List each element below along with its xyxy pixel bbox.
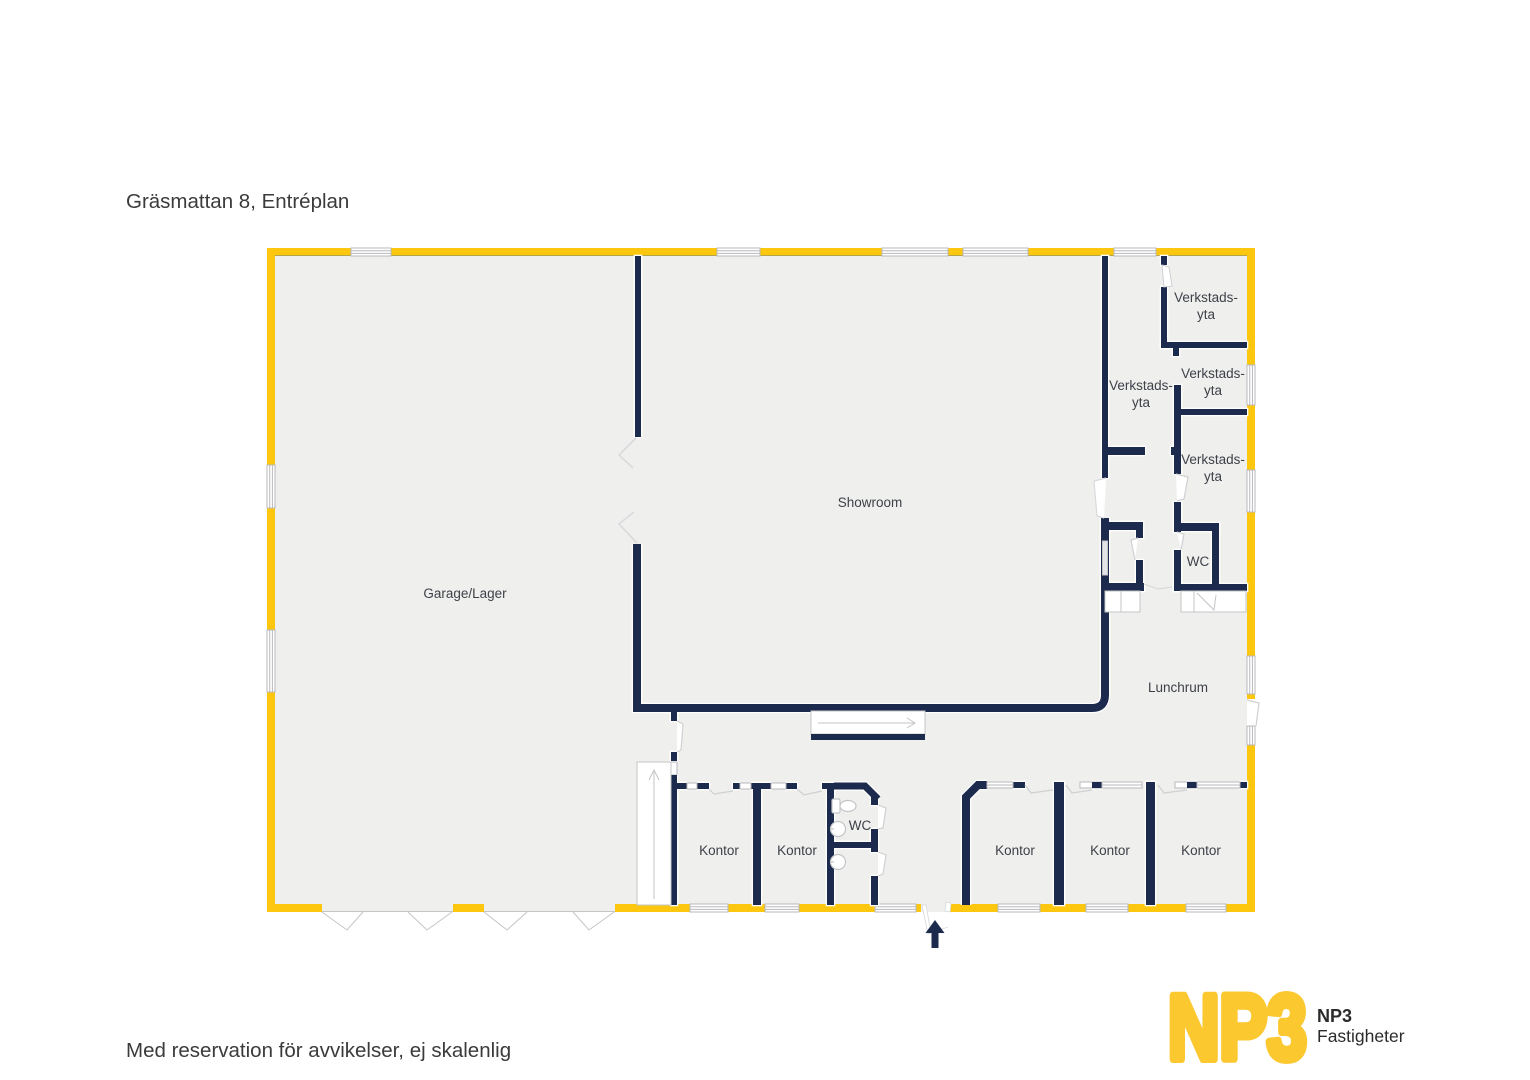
svg-text:Verkstads-: Verkstads- (1174, 290, 1238, 305)
svg-text:WC: WC (1187, 554, 1210, 569)
svg-text:Verkstads-: Verkstads- (1181, 452, 1245, 467)
svg-text:yta: yta (1204, 383, 1223, 398)
svg-text:NP3: NP3 (1317, 1006, 1352, 1026)
svg-text:yta: yta (1204, 469, 1223, 484)
svg-text:Kontor: Kontor (777, 843, 817, 858)
svg-text:Verkstads-: Verkstads- (1181, 366, 1245, 381)
svg-text:NP3: NP3 (1168, 976, 1307, 1079)
svg-text:Med reservation för avvikelser: Med reservation för avvikelser, ej skale… (126, 1039, 511, 1062)
svg-text:Lunchrum: Lunchrum (1148, 680, 1208, 695)
svg-text:Kontor: Kontor (995, 843, 1035, 858)
svg-text:yta: yta (1132, 395, 1151, 410)
svg-text:yta: yta (1197, 307, 1216, 322)
svg-text:WC: WC (849, 818, 872, 833)
svg-text:Verkstads-: Verkstads- (1109, 378, 1173, 393)
svg-text:Gräsmattan 8, Entréplan: Gräsmattan 8, Entréplan (126, 190, 349, 213)
svg-text:Showroom: Showroom (838, 495, 903, 510)
svg-text:Fastigheter: Fastigheter (1317, 1026, 1405, 1046)
svg-text:Kontor: Kontor (699, 843, 739, 858)
svg-text:Garage/Lager: Garage/Lager (423, 586, 507, 601)
svg-text:Kontor: Kontor (1090, 843, 1130, 858)
svg-text:Kontor: Kontor (1181, 843, 1221, 858)
